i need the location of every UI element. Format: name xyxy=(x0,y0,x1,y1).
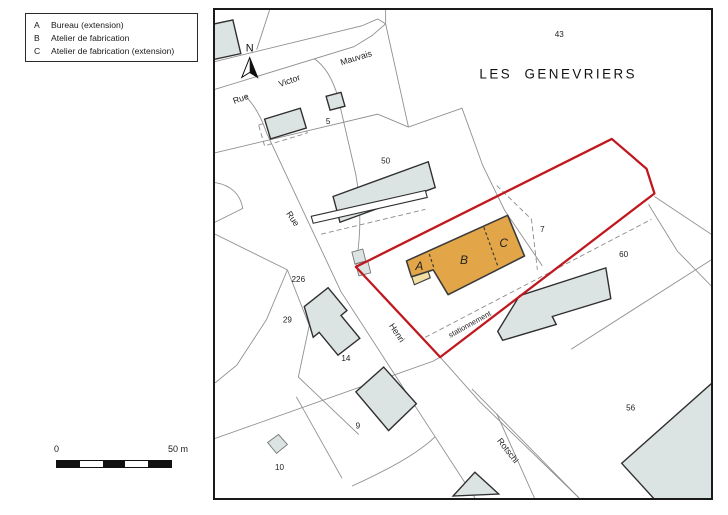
legend-label-a: Bureau (extension) xyxy=(51,19,191,31)
street-rue-victor-2: Victor xyxy=(277,72,301,89)
legend-item-c: C Atelier de fabrication (extension) xyxy=(34,45,191,57)
building-triangle-shape xyxy=(453,472,499,496)
site-plan-page: A Bureau (extension) B Atelier de fabric… xyxy=(0,0,728,515)
parcel-226: 226 xyxy=(292,275,306,284)
building-c-label: C xyxy=(499,236,508,250)
scale-end-label: 50 m xyxy=(168,444,188,454)
parcel-60: 60 xyxy=(619,250,629,259)
parcel-9: 9 xyxy=(356,422,361,431)
building-topleft-shape xyxy=(215,20,241,60)
parcel-14: 14 xyxy=(341,354,351,363)
parcel-56: 56 xyxy=(626,404,636,413)
area-name-label: LES GENEVRIERS xyxy=(479,66,637,81)
building-near-5-shape xyxy=(265,108,307,139)
street-rue-victor-1: Rue xyxy=(232,91,251,106)
map-canvas: A B C N Rue Victor Mauvais Rue Henri Rot… xyxy=(215,10,711,498)
street-rue-victor-3: Mauvais xyxy=(339,48,374,67)
legend-box: A Bureau (extension) B Atelier de fabric… xyxy=(25,13,198,62)
building-5-shape xyxy=(326,92,345,110)
legend-item-a: A Bureau (extension) xyxy=(34,19,191,31)
building-60-shape xyxy=(498,268,611,340)
legend-label-c: Atelier de fabrication (extension) xyxy=(51,45,191,57)
building-14-shape xyxy=(304,288,360,355)
building-b-label: B xyxy=(460,253,468,267)
building-10-shape xyxy=(268,435,288,454)
street-rue-henri-1: Rue xyxy=(284,209,301,228)
legend-key-a: A xyxy=(34,19,51,31)
north-arrow: N xyxy=(242,43,258,78)
parcel-5: 5 xyxy=(326,117,331,126)
parcel-43: 43 xyxy=(555,30,565,39)
building-9-shape xyxy=(356,367,417,430)
buildings-highlighted: A B C xyxy=(406,215,524,294)
scale-bar: 0 50 m xyxy=(50,444,180,468)
scale-start-label: 0 xyxy=(54,444,59,454)
street-rotschi: Rotschi xyxy=(495,436,521,465)
building-a-label: A xyxy=(414,259,423,273)
parcel-29: 29 xyxy=(283,315,293,324)
street-rue-henri-2: Henri xyxy=(387,321,407,344)
map-frame: A B C N Rue Victor Mauvais Rue Henri Rot… xyxy=(213,8,713,500)
scale-bar-labels: 0 50 m xyxy=(50,444,174,456)
legend-item-b: B Atelier de fabrication xyxy=(34,32,191,44)
legend-key-c: C xyxy=(34,45,51,57)
legend-label-b: Atelier de fabrication xyxy=(51,32,191,44)
north-label: N xyxy=(246,43,254,55)
legend-key-b: B xyxy=(34,32,51,44)
building-56-shape xyxy=(622,384,711,498)
scale-bar-graphic xyxy=(56,460,172,468)
parcel-7: 7 xyxy=(540,225,545,234)
parcel-50: 50 xyxy=(381,157,391,166)
parcel-10: 10 xyxy=(275,463,285,472)
